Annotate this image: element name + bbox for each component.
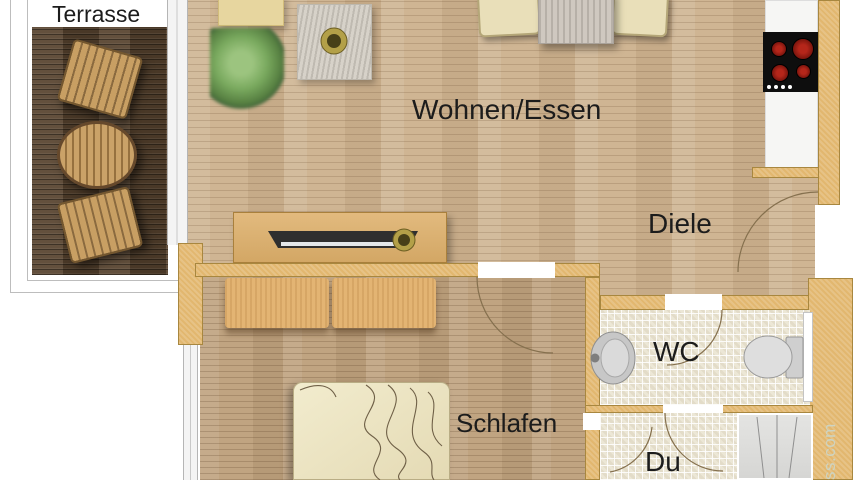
door-swing-arc xyxy=(477,277,553,353)
sink xyxy=(591,332,636,384)
tv-screen-glare xyxy=(281,242,405,246)
door-swing-arc xyxy=(738,192,818,272)
room-label-wc: WC xyxy=(653,337,700,366)
bed-duvet-pattern xyxy=(300,385,442,480)
watermark: ss.com xyxy=(820,400,852,480)
toilet xyxy=(744,336,803,378)
decor-bowl-center xyxy=(398,234,410,246)
railing-line xyxy=(10,0,11,292)
decor-bowl-center xyxy=(327,34,341,48)
railing-line xyxy=(10,292,178,293)
plan-linework xyxy=(0,0,853,480)
room-label-diele: Diele xyxy=(648,209,712,238)
room-label-schlafen: Schlafen xyxy=(456,410,557,437)
railing-line xyxy=(27,280,178,281)
sink-faucet xyxy=(591,354,600,363)
shower-drain-lines xyxy=(757,415,797,478)
room-label-dusche: Du xyxy=(645,447,681,476)
railing-line xyxy=(27,0,28,280)
room-label-wohnen-essen: Wohnen/Essen xyxy=(412,95,601,124)
floor-plan: Terrasse Wohnen/Essen Diele WC Schlafen … xyxy=(0,0,853,480)
room-label-terrasse: Terrasse xyxy=(52,2,140,26)
